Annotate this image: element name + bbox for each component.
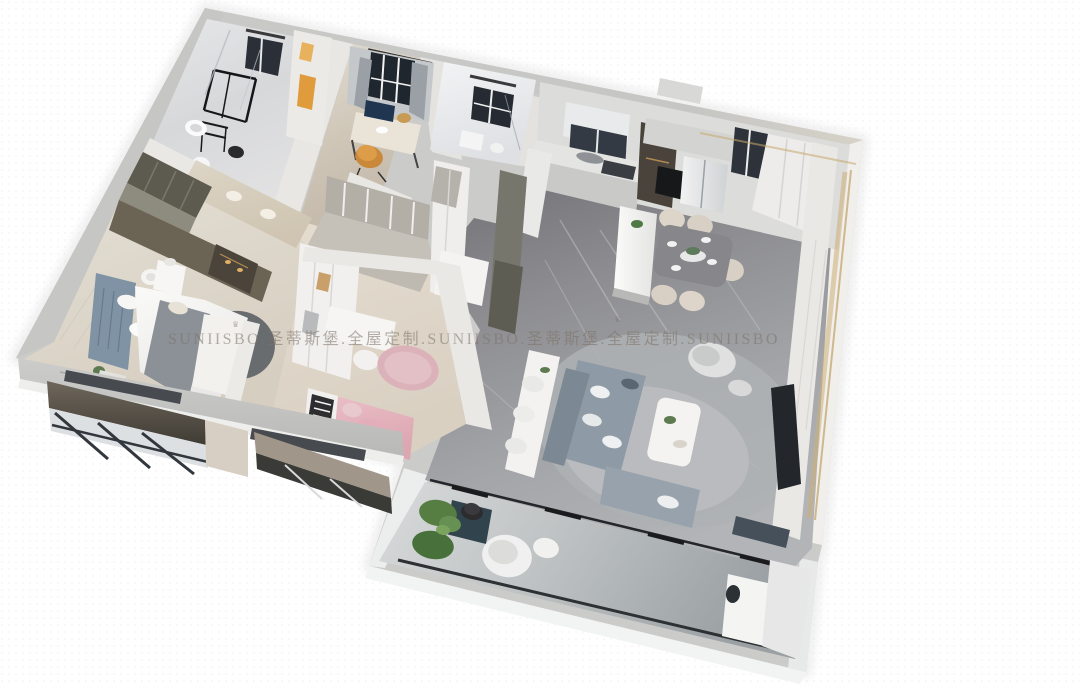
- svg-text:♛: ♛: [614, 315, 621, 324]
- svg-text:SUNIISBO.圣蒂斯堡.全屋定制.SUNIISBO.圣蒂: SUNIISBO.圣蒂斯堡.全屋定制.SUNIISBO.圣蒂斯堡.全屋定制.SU…: [168, 330, 780, 348]
- svg-text:♛: ♛: [232, 320, 239, 329]
